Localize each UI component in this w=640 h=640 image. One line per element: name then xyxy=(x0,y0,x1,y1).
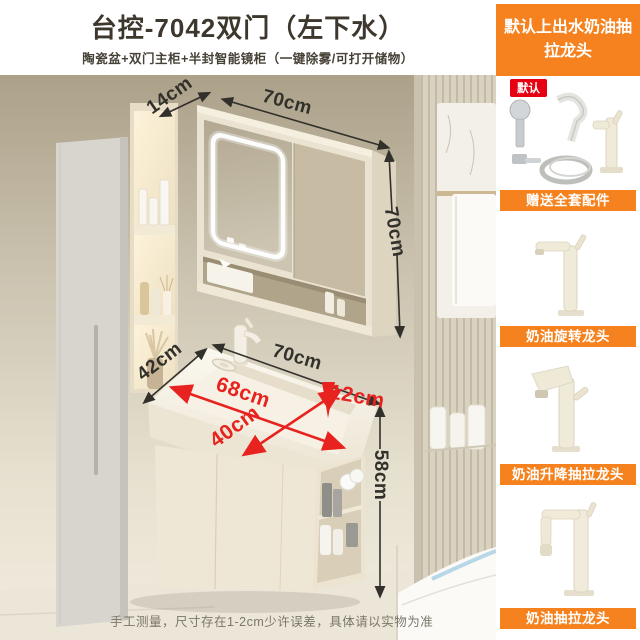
hose-icon xyxy=(542,158,590,182)
pullout-faucet-image xyxy=(498,488,638,606)
section-label-rotating: 奶油旋转龙头 xyxy=(500,326,636,347)
section-label-pullout: 奶油抽拉龙头 xyxy=(500,608,636,629)
door-handle xyxy=(94,325,98,475)
section-label-lift-pullout: 奶油升降抽拉龙头 xyxy=(500,464,636,485)
sidebar: 默认上出水奶油抽拉龙头 默认 赠送全套配件 xyxy=(496,0,640,640)
niche-shelves xyxy=(130,103,178,393)
faucet-icon xyxy=(593,110,623,173)
section-label-accessories: 赠送全套配件 xyxy=(500,190,636,211)
page-subtitle: 陶瓷盆+双门主柜+半封智能镜柜（一键除雾/可打开储物） xyxy=(0,48,496,67)
gold-bottle xyxy=(140,282,149,315)
bathroom-scene-image: 14cm 70cm 70cm 42cm 70cm 58cm 68cm 40cm … xyxy=(0,75,496,640)
towel xyxy=(452,194,496,306)
rotating-faucet-image xyxy=(498,214,638,324)
storage-bottle xyxy=(322,483,332,517)
header: 台控-7042双门（左下水） 陶瓷盆+双门主柜+半封智能镜柜（一键除雾/可打开储… xyxy=(0,0,496,75)
accessories-kit-image xyxy=(498,90,638,188)
pop-up-drain-icon xyxy=(516,119,524,147)
product-infographic: 台控-7042双门（左下水） 陶瓷盆+双门主柜+半封智能镜柜（一键除雾/可打开储… xyxy=(0,0,640,640)
scene-drawing xyxy=(0,75,496,640)
lift-pullout-faucet-image xyxy=(498,348,638,462)
sidebar-banner: 默认上出水奶油抽拉龙头 xyxy=(496,4,640,76)
side-open-shelf xyxy=(313,455,365,591)
page-title: 台控-7042双门（左下水） xyxy=(0,8,496,45)
angle-valve-icon xyxy=(512,154,527,164)
lift-pullout-faucet-icon xyxy=(532,366,589,452)
towel-panel xyxy=(437,103,496,318)
disclaimer-text: 手工测量，尺寸存在1-2cm少许误差，具体请以实物为准 xyxy=(110,611,433,630)
bathroom-door xyxy=(56,137,128,627)
rotating-faucet-icon xyxy=(535,234,587,316)
pullout-faucet-icon xyxy=(540,502,597,596)
cabinet-door xyxy=(294,143,365,296)
